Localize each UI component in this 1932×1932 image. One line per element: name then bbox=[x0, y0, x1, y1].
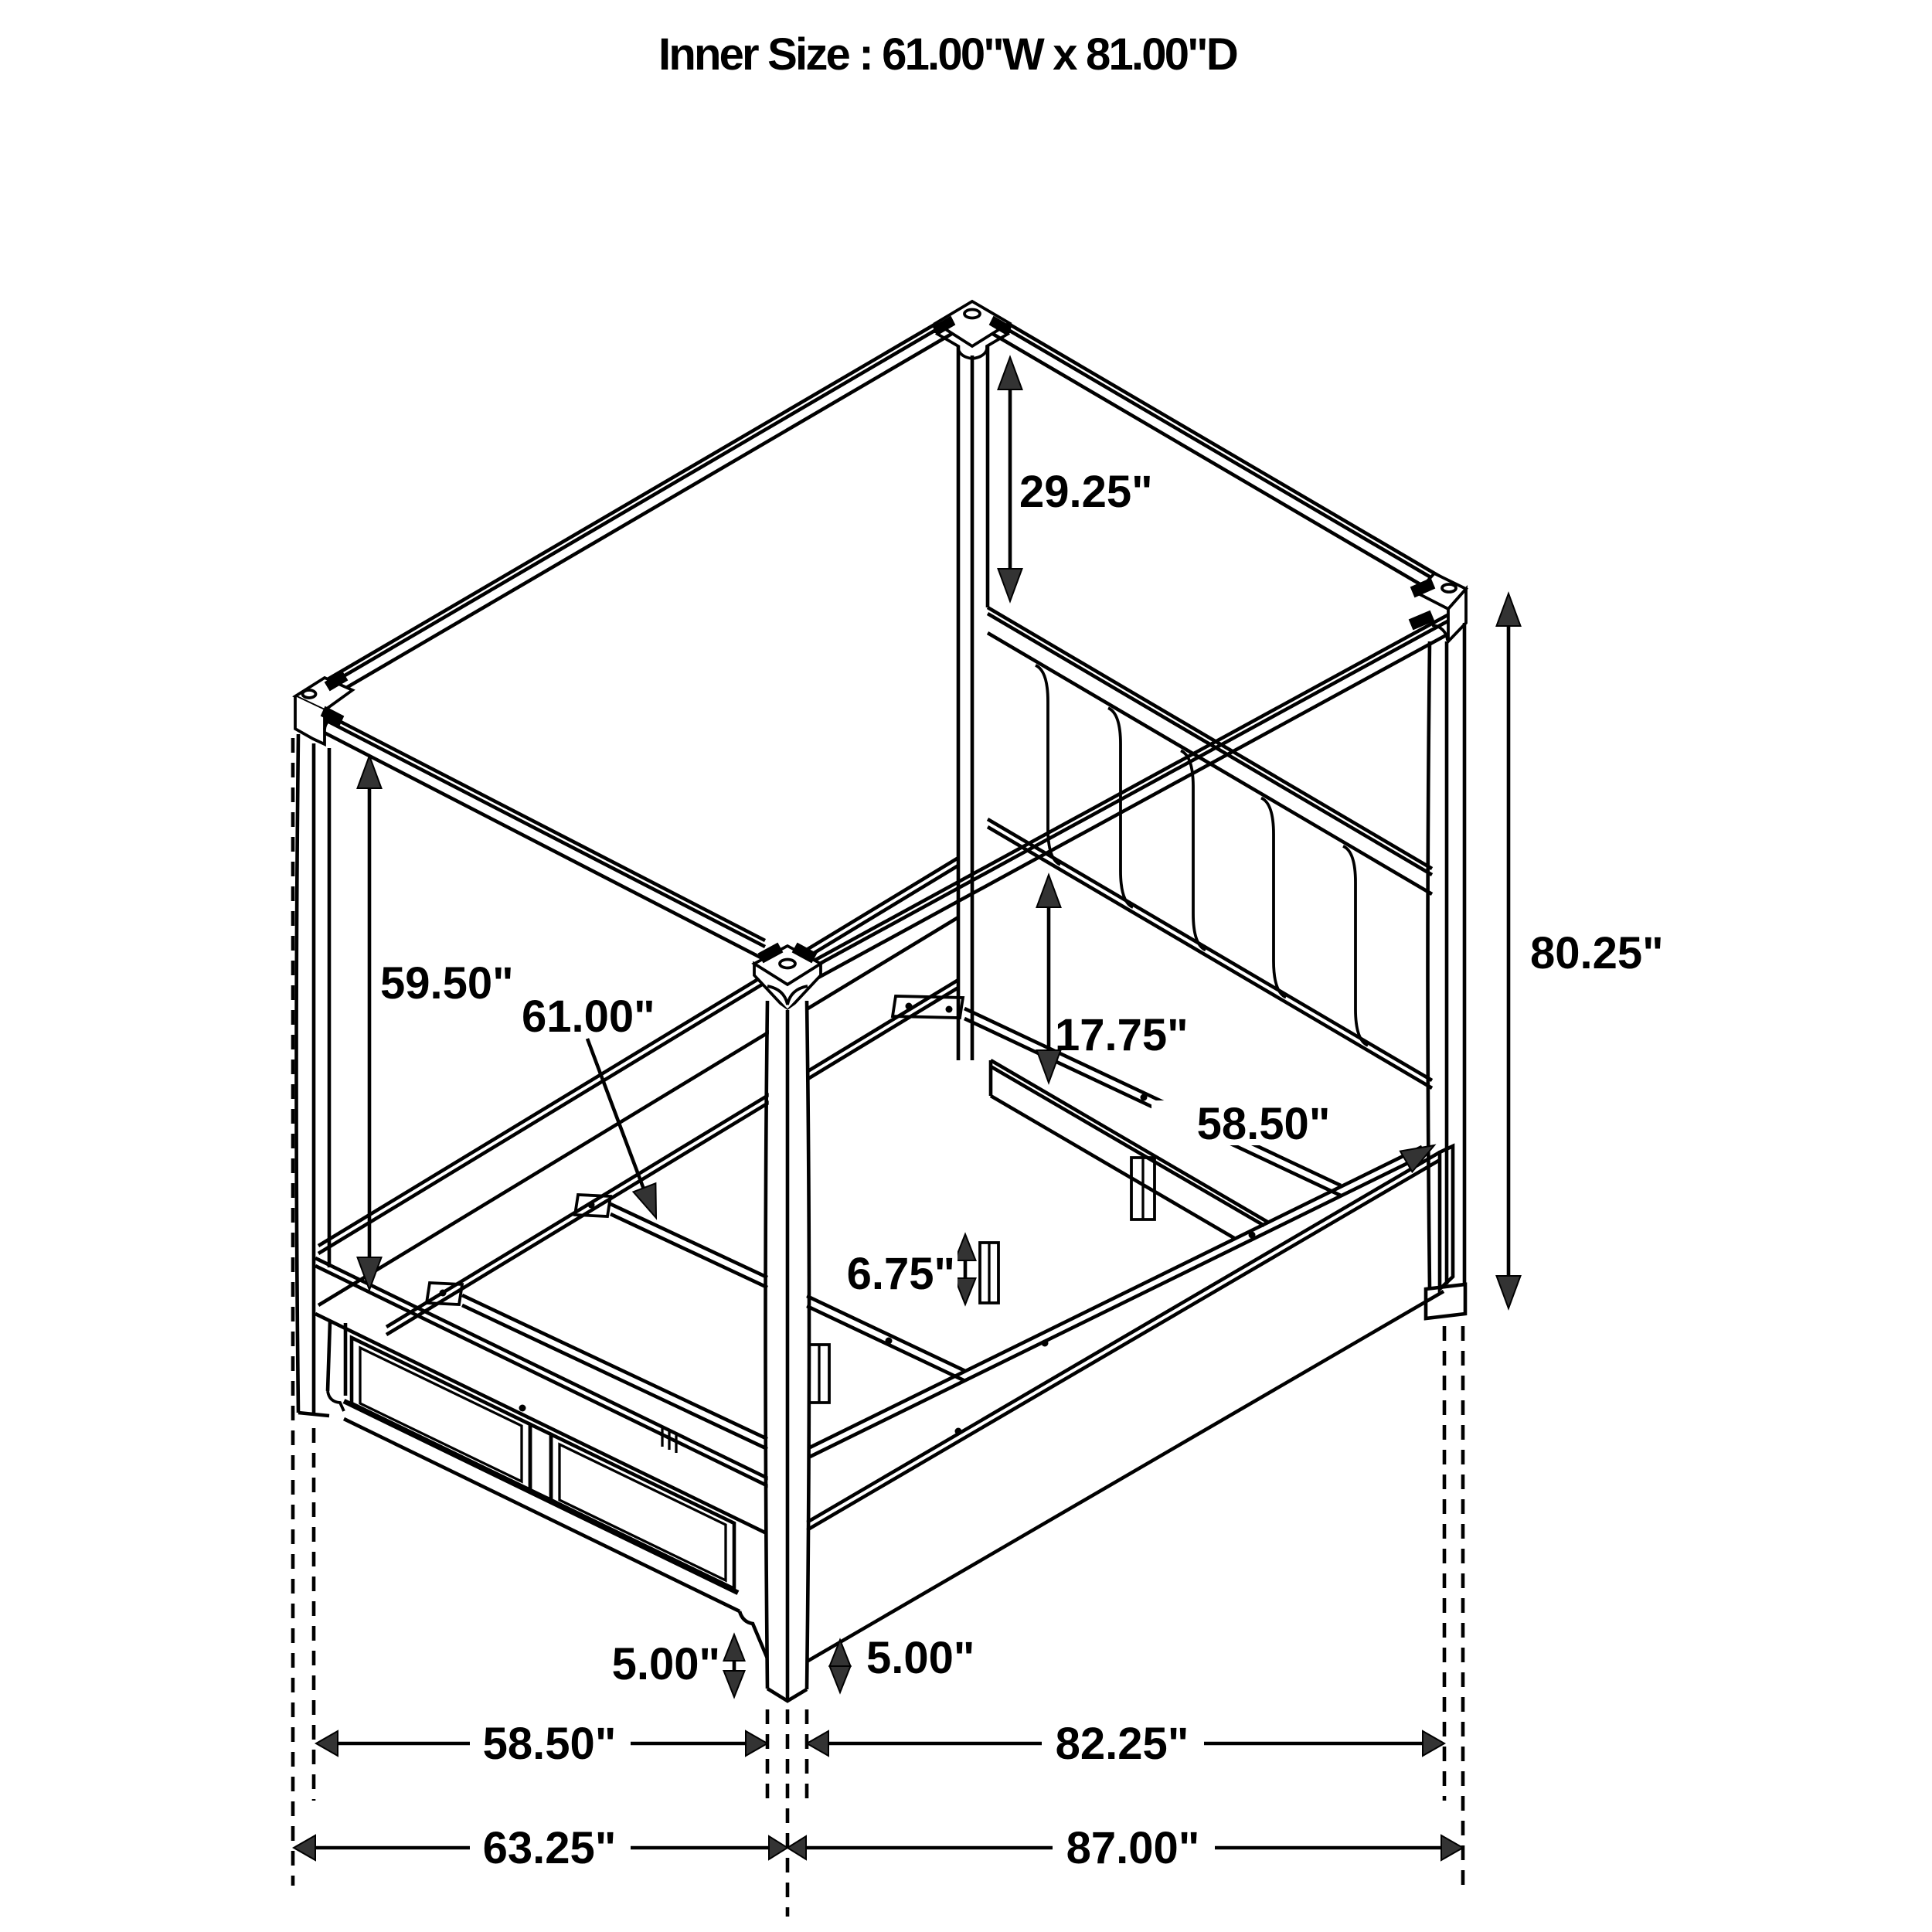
svg-text:58.50": 58.50" bbox=[483, 1719, 617, 1769]
svg-text:87.00": 87.00" bbox=[1066, 1823, 1200, 1873]
svg-text:82.25": 82.25" bbox=[1056, 1719, 1189, 1769]
svg-text:59.50": 59.50" bbox=[380, 958, 514, 1009]
svg-text:80.25": 80.25" bbox=[1530, 928, 1664, 978]
svg-text:63.25": 63.25" bbox=[483, 1823, 617, 1873]
svg-text:Inner Size : 61.00"W x 81.00"D: Inner Size : 61.00"W x 81.00"D bbox=[658, 29, 1237, 80]
svg-text:17.75": 17.75" bbox=[1055, 1010, 1189, 1060]
svg-text:29.25": 29.25" bbox=[1019, 467, 1153, 517]
svg-text:5.00": 5.00" bbox=[612, 1639, 720, 1689]
svg-text:61.00": 61.00" bbox=[522, 992, 655, 1042]
svg-text:5.00": 5.00" bbox=[866, 1633, 975, 1683]
svg-text:58.50": 58.50" bbox=[1197, 1099, 1331, 1149]
svg-text:6.75": 6.75" bbox=[847, 1249, 955, 1299]
